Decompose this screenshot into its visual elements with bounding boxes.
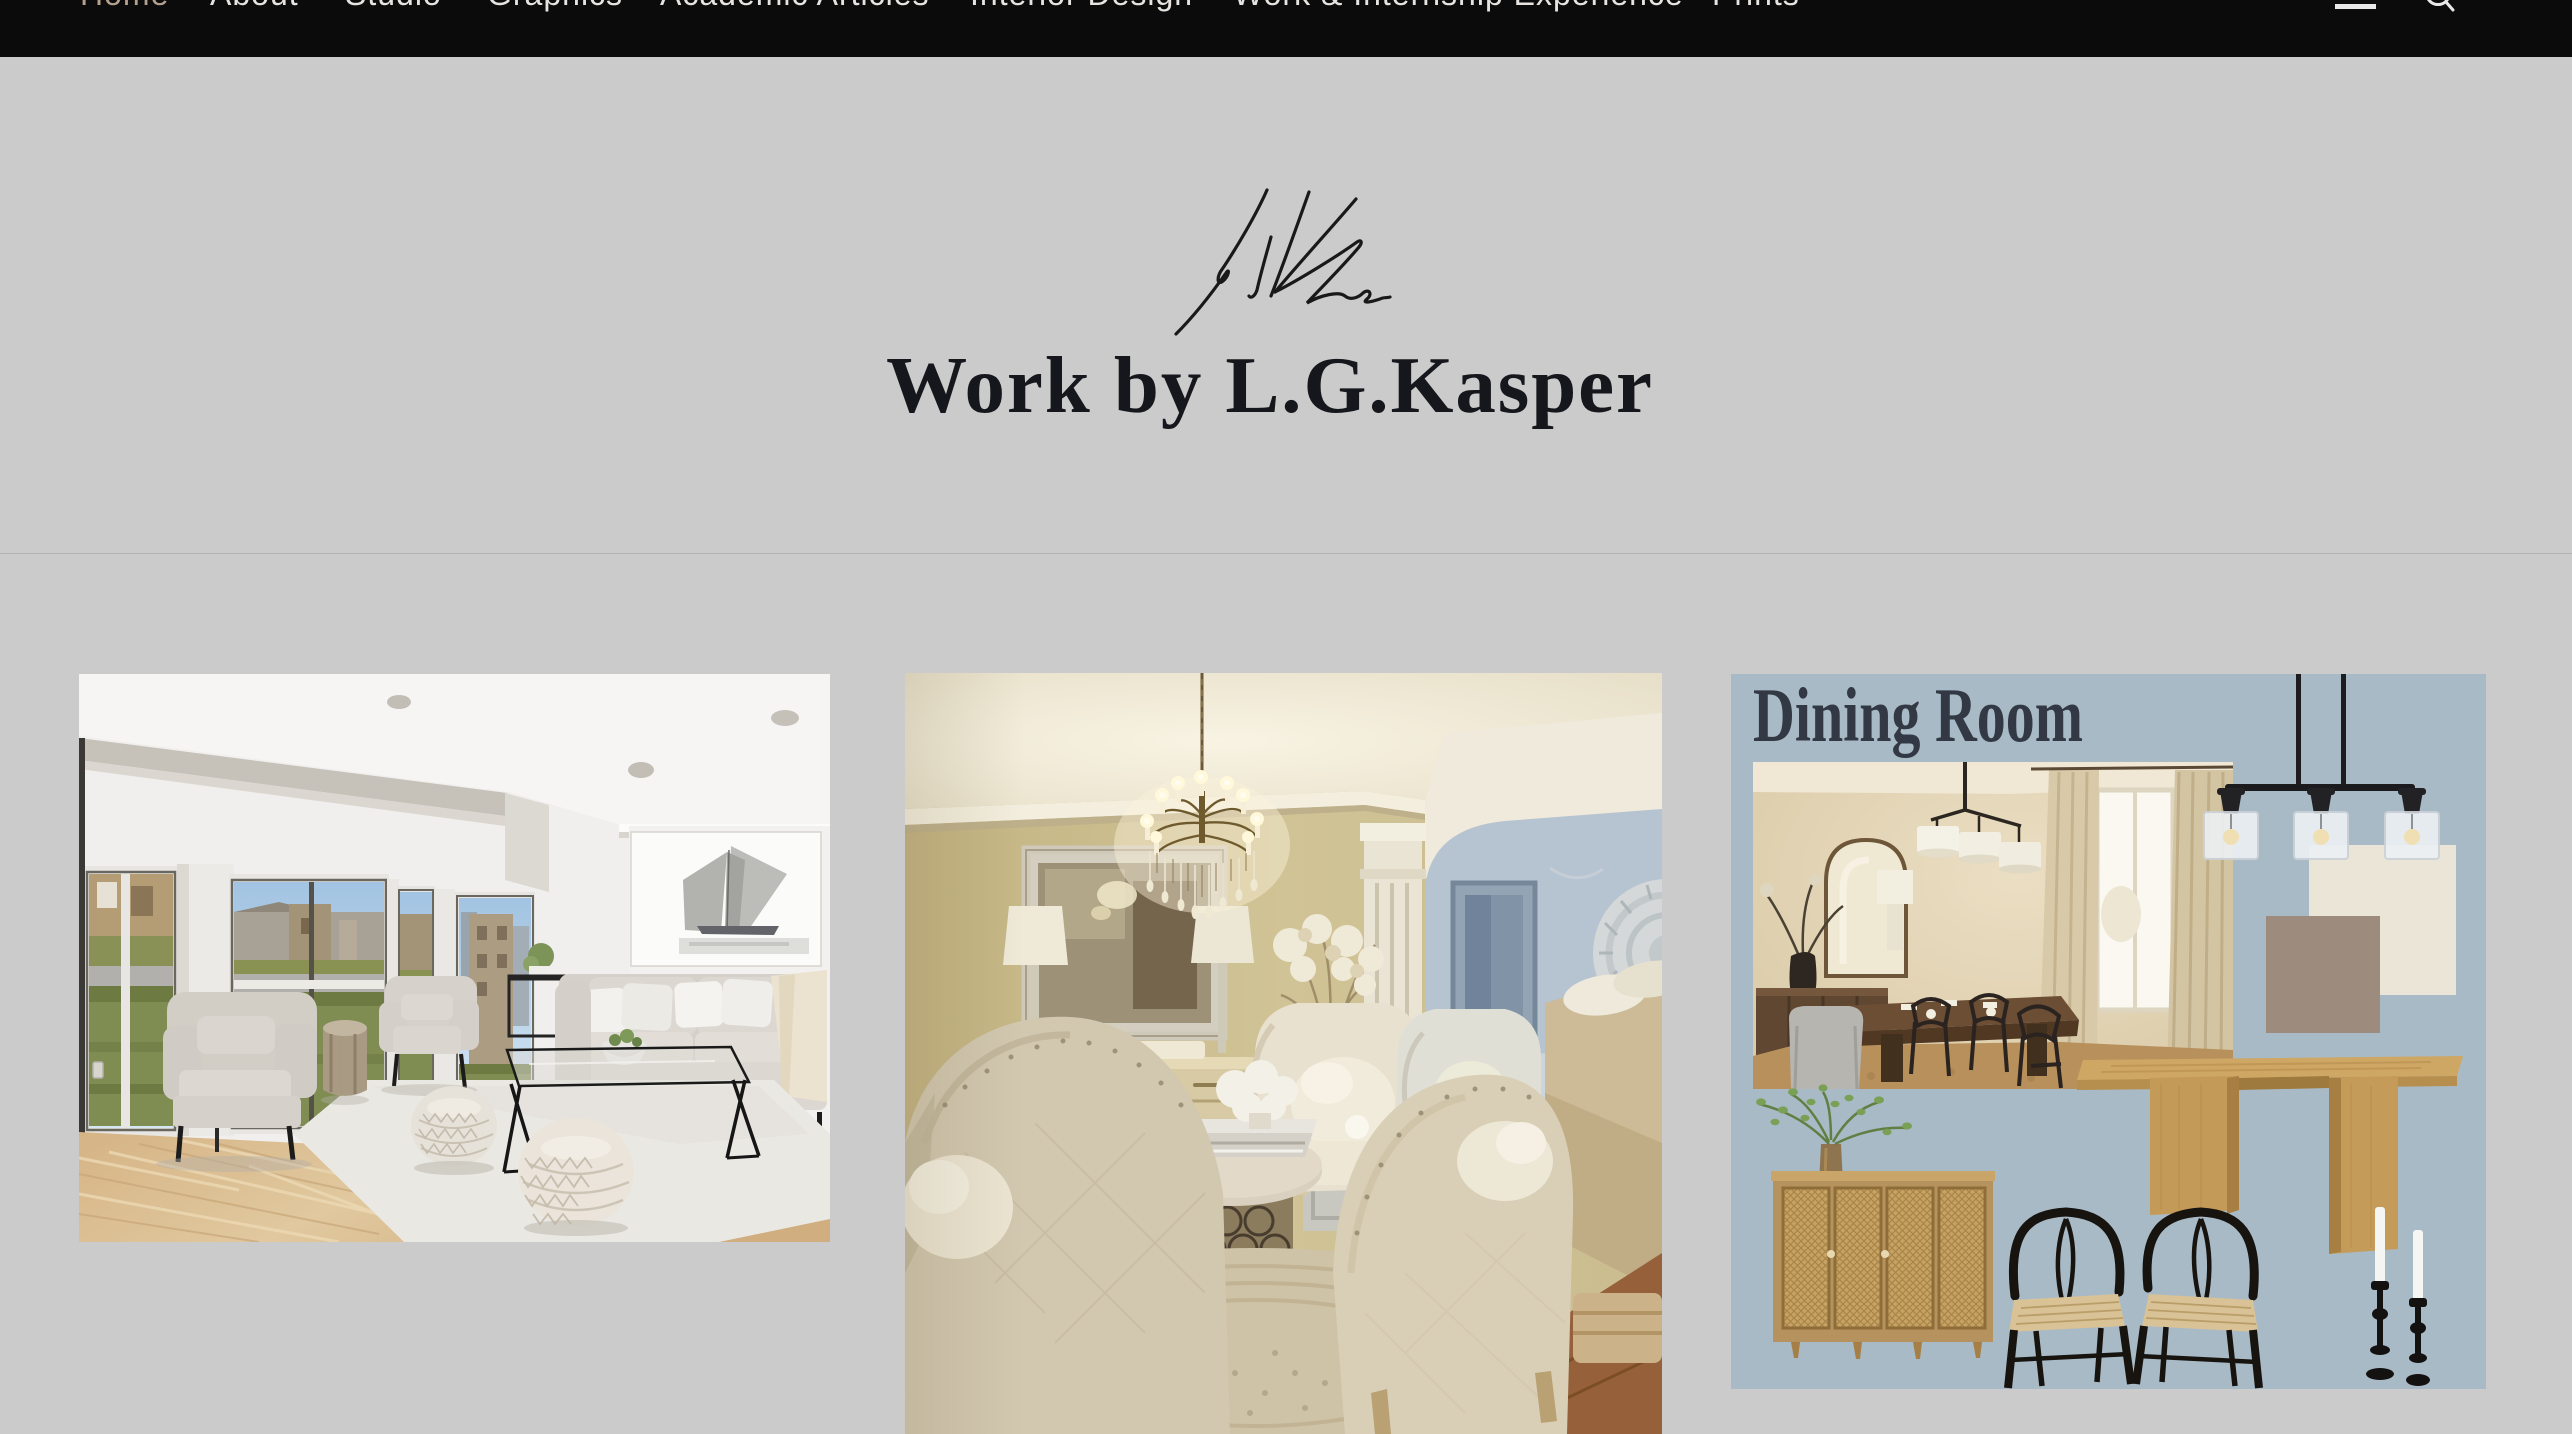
svg-text:Dining Room: Dining Room bbox=[1753, 674, 2083, 758]
